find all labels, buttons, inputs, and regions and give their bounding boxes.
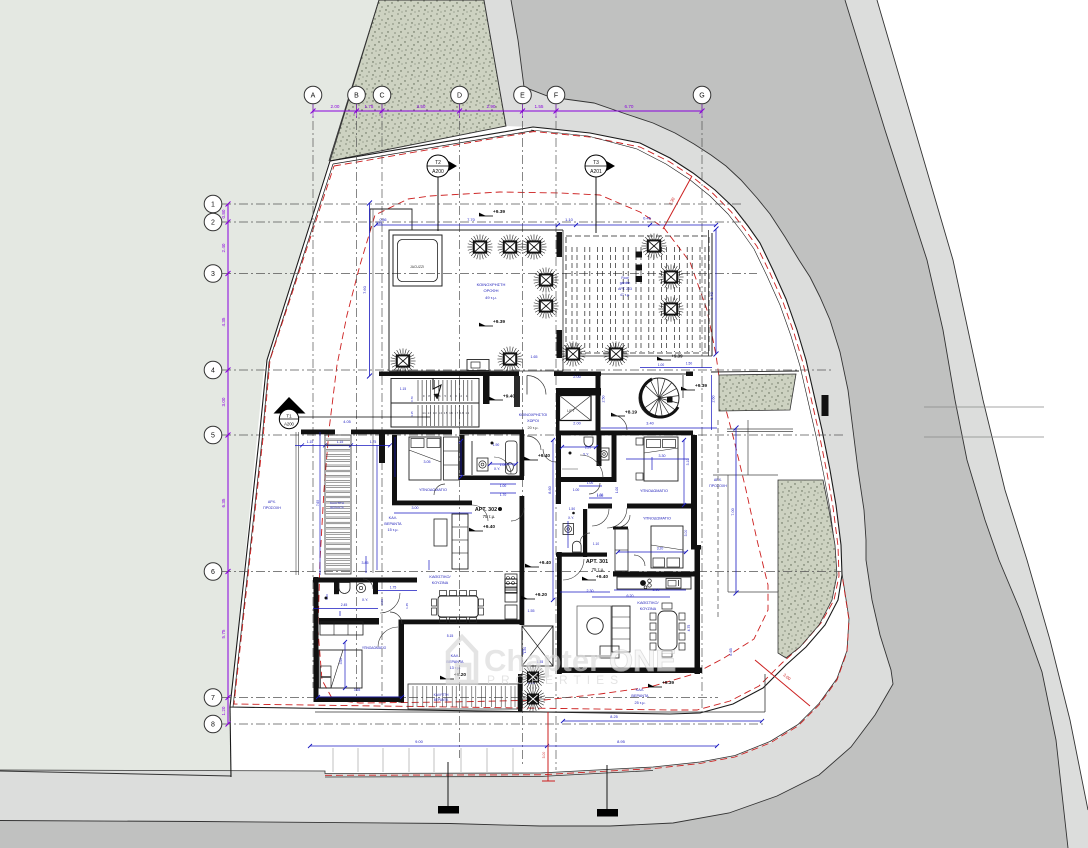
svg-text:6: 6 — [211, 569, 215, 576]
svg-text:6.35: 6.35 — [221, 498, 226, 507]
svg-text:1.20: 1.20 — [221, 706, 226, 715]
svg-text:ΑΡΤ. 203: ΑΡΤ. 203 — [618, 287, 632, 291]
svg-text:C: C — [379, 93, 384, 100]
svg-text:4: 4 — [211, 368, 215, 375]
svg-text:75 τ.μ.: 75 τ.μ. — [483, 514, 496, 519]
svg-text:7.65: 7.65 — [316, 500, 320, 506]
svg-text:1.65: 1.65 — [531, 355, 538, 359]
svg-text:+9.39: +9.39 — [493, 319, 505, 325]
svg-text:5.75: 5.75 — [221, 629, 226, 638]
svg-text:A200: A200 — [432, 169, 444, 175]
svg-text:47 τ.μ.: 47 τ.μ. — [620, 293, 630, 297]
svg-text:1.45: 1.45 — [405, 603, 409, 609]
svg-text:2: 2 — [211, 220, 215, 227]
svg-text:ΟΡΟΦΗ: ΟΡΟΦΗ — [484, 288, 499, 293]
svg-text:2.45: 2.45 — [341, 603, 348, 607]
svg-text:2.60: 2.60 — [712, 396, 716, 403]
svg-text:1.00: 1.00 — [658, 363, 665, 367]
svg-text:ΑΡΤ. 301: ΑΡΤ. 301 — [586, 559, 608, 565]
svg-text:+9.40: +9.40 — [503, 394, 515, 400]
svg-text:49 τ.μ.: 49 τ.μ. — [485, 295, 497, 300]
svg-text:PROPERTIES: PROPERTIES — [487, 673, 624, 687]
svg-text:4.75: 4.75 — [687, 625, 691, 632]
svg-text:2.50: 2.50 — [602, 396, 606, 403]
svg-text:X.Y.: X.Y. — [362, 598, 368, 602]
svg-text:2.00: 2.00 — [573, 375, 580, 379]
svg-text:G: G — [699, 93, 704, 100]
svg-text:0.45: 0.45 — [643, 216, 652, 221]
svg-text:3.65: 3.65 — [354, 688, 361, 692]
svg-text:1.90: 1.90 — [493, 443, 500, 447]
svg-text:1.00: 1.00 — [500, 463, 507, 467]
svg-text:1.55: 1.55 — [535, 104, 544, 109]
svg-text:ΚΑΛ.: ΚΑΛ. — [451, 654, 460, 658]
svg-text:JACUZZI: JACUZZI — [410, 265, 424, 269]
svg-text:3.40: 3.40 — [646, 422, 653, 426]
svg-text:ΚΟΙΝΟΧΡΗΣΤΗ: ΚΟΙΝΟΧΡΗΣΤΗ — [477, 282, 506, 287]
svg-text:8.95: 8.95 — [617, 739, 626, 744]
svg-text:+9.40: +9.40 — [539, 560, 551, 566]
svg-text:ΚΑΛ.: ΚΑΛ. — [389, 516, 398, 520]
svg-text:6.65: 6.65 — [729, 648, 733, 655]
svg-text:1.50: 1.50 — [686, 362, 693, 366]
svg-text:1.10: 1.10 — [593, 542, 599, 546]
svg-text:15 τ.μ.: 15 τ.μ. — [387, 528, 398, 532]
svg-text:6.40: 6.40 — [709, 291, 714, 300]
svg-text:+8.19: +8.19 — [625, 410, 637, 416]
svg-text:2.00: 2.00 — [331, 104, 340, 109]
svg-text:11 12 13 14 15 16 17 18 19: 11 12 13 14 15 16 17 18 19 — [422, 411, 469, 415]
svg-text:8: 8 — [211, 722, 215, 729]
svg-text:8.25: 8.25 — [610, 715, 617, 719]
svg-text:1.70: 1.70 — [500, 493, 507, 497]
svg-text:6.70: 6.70 — [625, 104, 634, 109]
svg-text:ΑΡΤ. 302: ΑΡΤ. 302 — [475, 507, 497, 513]
svg-text:+9.39: +9.39 — [671, 354, 683, 359]
svg-text:3.85: 3.85 — [362, 561, 369, 565]
svg-text:7.70: 7.70 — [467, 217, 476, 222]
svg-text:1.00: 1.00 — [573, 488, 580, 492]
svg-text:2.40: 2.40 — [221, 243, 226, 252]
svg-text:+9.40: +9.40 — [596, 574, 608, 580]
svg-text:4.35: 4.35 — [221, 317, 226, 326]
svg-text:0.80: 0.80 — [221, 209, 226, 218]
svg-text:ΥΠΝΟΔΩΜΑΤΙΟ: ΥΠΝΟΔΩΜΑΤΙΟ — [640, 489, 668, 493]
svg-text:ΑΡΧ.: ΑΡΧ. — [268, 500, 276, 504]
svg-text:0.70: 0.70 — [410, 396, 414, 402]
svg-text:ΚΑΛΥΠΤΗ: ΚΑΛΥΠΤΗ — [330, 501, 344, 505]
svg-text:7.60: 7.60 — [362, 285, 367, 294]
svg-text:T3: T3 — [593, 160, 599, 166]
svg-text:20 τ.μ.: 20 τ.μ. — [527, 426, 538, 430]
svg-text:9 8 7 6 5 4 3 2 1: 9 8 7 6 5 4 3 2 1 — [423, 394, 469, 398]
svg-text:7.00: 7.00 — [731, 508, 735, 515]
svg-text:1.00: 1.00 — [597, 494, 604, 498]
svg-text:ΚΑΘΙΣΤΙΚΟ/: ΚΑΘΙΣΤΙΚΟ/ — [637, 601, 659, 605]
svg-text:ΒΕΡΑΝΤΑ: ΒΕΡΑΝΤΑ — [434, 698, 449, 702]
svg-text:5: 5 — [211, 433, 215, 440]
svg-text:1.15: 1.15 — [410, 411, 414, 417]
svg-text:ΚΑΘΙΣΤΙΚΟ/: ΚΑΘΙΣΤΙΚΟ/ — [429, 575, 451, 579]
svg-text:1.00: 1.00 — [615, 487, 619, 493]
svg-text:1.15: 1.15 — [307, 440, 314, 444]
svg-text:1.10: 1.10 — [325, 594, 329, 600]
svg-text:3: 3 — [211, 271, 215, 278]
svg-text:ΒΕΡΑΝΤΑ: ΒΕΡΑΝΤΑ — [631, 694, 649, 698]
svg-text:ΚΑΛΥΠΤΗ: ΚΑΛΥΠΤΗ — [434, 693, 450, 697]
svg-text:ΧΩΡΟΙ: ΧΩΡΟΙ — [527, 419, 539, 423]
svg-text:D: D — [457, 93, 462, 100]
svg-text:0.95: 0.95 — [376, 221, 382, 225]
svg-text:5.15: 5.15 — [447, 634, 454, 638]
svg-text:8.60: 8.60 — [548, 486, 552, 493]
svg-text:F: F — [554, 93, 558, 100]
svg-text:+9.20: +9.20 — [535, 592, 547, 598]
svg-text:X.Y.: X.Y. — [494, 467, 500, 471]
svg-text:1: 1 — [211, 202, 215, 209]
svg-text:+9.40: +9.40 — [483, 524, 495, 530]
svg-text:A: A — [311, 93, 316, 100]
svg-text:ΚΟΥΖΙΝΑ: ΚΟΥΖΙΝΑ — [640, 607, 657, 611]
svg-text:1.50: 1.50 — [569, 507, 575, 511]
svg-text:2.90: 2.90 — [487, 104, 496, 109]
svg-text:3.10: 3.10 — [686, 459, 690, 466]
svg-text:1.10: 1.10 — [565, 217, 574, 222]
svg-text:9.00: 9.00 — [415, 739, 424, 744]
svg-text:2.00: 2.00 — [573, 422, 580, 426]
svg-text:3.20: 3.20 — [657, 547, 664, 551]
svg-text:2.30: 2.30 — [587, 589, 594, 593]
svg-text:3.60: 3.60 — [339, 658, 343, 665]
svg-text:3.50: 3.50 — [417, 104, 426, 109]
svg-text:LIFT: LIFT — [567, 409, 575, 413]
svg-text:ΠΡΟΣΟΧΗ: ΠΡΟΣΟΧΗ — [263, 506, 281, 510]
svg-text:2.06: 2.06 — [380, 599, 384, 605]
svg-text:A201: A201 — [590, 169, 602, 175]
svg-text:A200: A200 — [284, 422, 294, 427]
svg-text:2.20: 2.20 — [585, 446, 591, 450]
svg-text:25 τ.μ.: 25 τ.μ. — [634, 701, 645, 705]
svg-text:1.15: 1.15 — [400, 387, 406, 391]
svg-text:3.00: 3.00 — [412, 506, 419, 510]
svg-text:Roof: Roof — [621, 276, 628, 280]
svg-text:1.75: 1.75 — [390, 586, 397, 590]
svg-text:ΚΟΙΝΟΧΡΗΣΤΟΙ: ΚΟΙΝΟΧΡΗΣΤΟΙ — [519, 413, 548, 417]
svg-text:+9.39: +9.39 — [493, 209, 505, 215]
svg-text:ΒΕΡΑΝΤΑ: ΒΕΡΑΝΤΑ — [384, 522, 402, 526]
svg-text:ΒΕΡΑΝΤΑ: ΒΕΡΑΝΤΑ — [330, 506, 344, 510]
svg-text:B: B — [354, 93, 359, 100]
svg-text:3.00: 3.00 — [684, 530, 688, 537]
svg-text:3.00: 3.00 — [542, 752, 546, 759]
svg-text:E: E — [520, 93, 525, 100]
svg-text:ΥΠΝΟΔΩΜΑΤΙΟ: ΥΠΝΟΔΩΜΑΤΙΟ — [362, 646, 387, 650]
svg-text:1.55: 1.55 — [528, 609, 535, 613]
svg-text:X.Y.: X.Y. — [568, 516, 574, 520]
svg-text:1.00: 1.00 — [587, 481, 594, 485]
svg-text:3.00: 3.00 — [221, 397, 226, 406]
svg-text:3.30: 3.30 — [659, 454, 666, 458]
svg-text:+9.39: +9.39 — [695, 383, 707, 389]
svg-text:4.05: 4.05 — [343, 420, 350, 424]
svg-text:ΥΠΝΟΔΩΜΑΤΙΟ: ΥΠΝΟΔΩΜΑΤΙΟ — [643, 517, 671, 521]
svg-text:T1: T1 — [286, 414, 292, 419]
svg-text:6.20: 6.20 — [627, 594, 634, 598]
svg-text:3.05: 3.05 — [424, 460, 431, 464]
svg-text:75 τ.μ.: 75 τ.μ. — [592, 567, 605, 572]
svg-text:1.00: 1.00 — [500, 484, 507, 488]
svg-text:1.75: 1.75 — [365, 104, 374, 109]
svg-text:T2: T2 — [435, 160, 441, 166]
svg-text:1.75: 1.75 — [370, 440, 377, 444]
svg-text:+9.39: +9.39 — [662, 680, 674, 686]
svg-text:7: 7 — [211, 695, 215, 702]
svg-text:ΥΠΝΟΔΩΜΑΤΙΟ: ΥΠΝΟΔΩΜΑΤΙΟ — [419, 488, 447, 492]
svg-text:ΚΟΥΖΙΝΑ: ΚΟΥΖΙΝΑ — [432, 581, 449, 585]
svg-text:ΚΑΛ.: ΚΑΛ. — [636, 688, 645, 692]
svg-text:garden: garden — [620, 281, 631, 285]
